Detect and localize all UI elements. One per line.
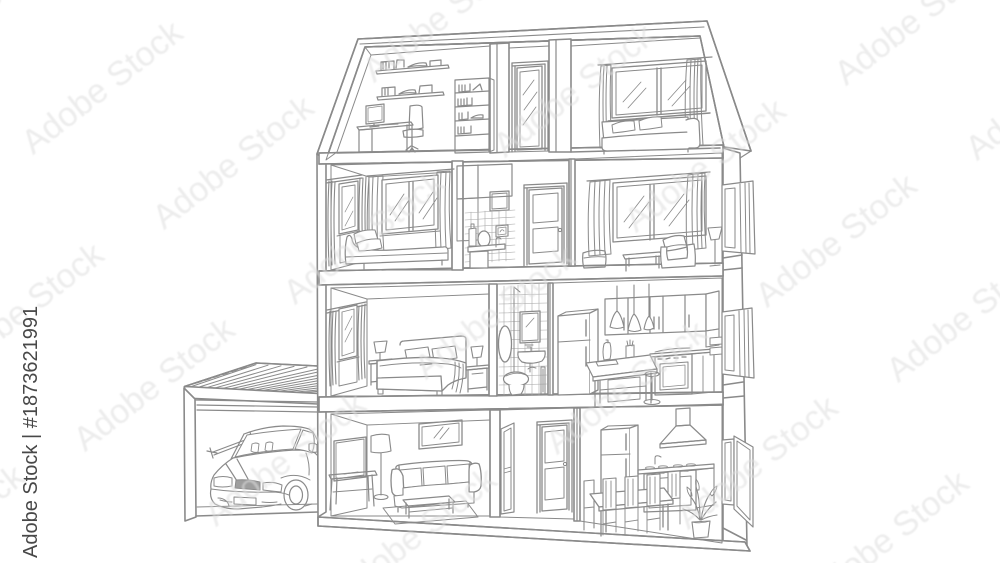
svg-text:Adobe Stock | #1873621991: Adobe Stock | #1873621991 [20, 306, 42, 558]
